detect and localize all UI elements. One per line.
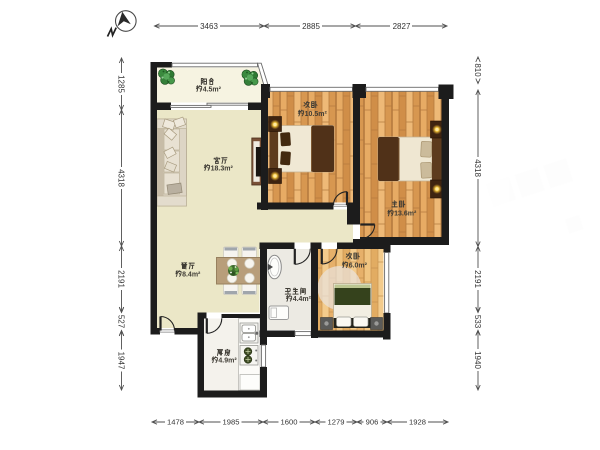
svg-text:527: 527 [117,315,126,329]
svg-text:2191: 2191 [473,270,482,288]
svg-text:1985: 1985 [223,418,240,427]
svg-text:4.5m²: 4.5m² [203,86,222,93]
svg-text:2191: 2191 [117,270,126,288]
svg-text:1279: 1279 [328,418,345,427]
svg-text:1600: 1600 [281,418,298,427]
svg-text:18.3m²: 18.3m² [211,165,234,172]
svg-text:3463: 3463 [200,22,218,31]
svg-text:810: 810 [473,63,482,77]
svg-text:2885: 2885 [302,22,320,31]
svg-text:10.5m²: 10.5m² [305,111,328,118]
svg-text:4.9m²: 4.9m² [218,358,237,365]
svg-text:1285: 1285 [117,75,126,93]
svg-text:1947: 1947 [117,352,126,370]
svg-text:1478: 1478 [167,418,184,427]
svg-text:13.6m²: 13.6m² [394,211,417,218]
svg-text:8.4m²: 8.4m² [182,271,201,278]
svg-text:6.0m²: 6.0m² [349,263,368,270]
svg-text:906: 906 [366,418,379,427]
svg-text:4318: 4318 [117,169,126,187]
svg-text:4.4m²: 4.4m² [293,296,312,303]
svg-text:1928: 1928 [409,418,426,427]
svg-text:4318: 4318 [473,159,482,177]
svg-text:1940: 1940 [473,351,482,369]
svg-text:533: 533 [473,315,482,329]
svg-text:2827: 2827 [393,22,411,31]
